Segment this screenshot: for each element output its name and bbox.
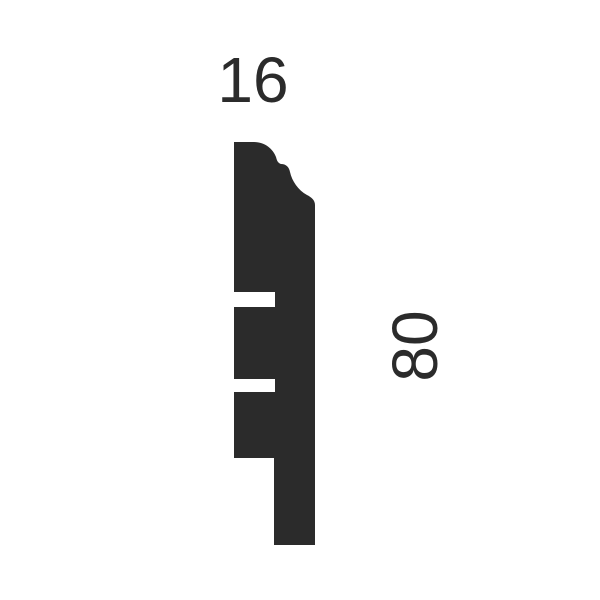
profile-drawing: 16 80	[0, 0, 600, 600]
width-dimension-label: 16	[217, 44, 288, 116]
height-dimension-label: 80	[379, 310, 451, 381]
skirting-profile-shape	[234, 142, 315, 545]
diagram-canvas: 16 80	[0, 0, 600, 600]
